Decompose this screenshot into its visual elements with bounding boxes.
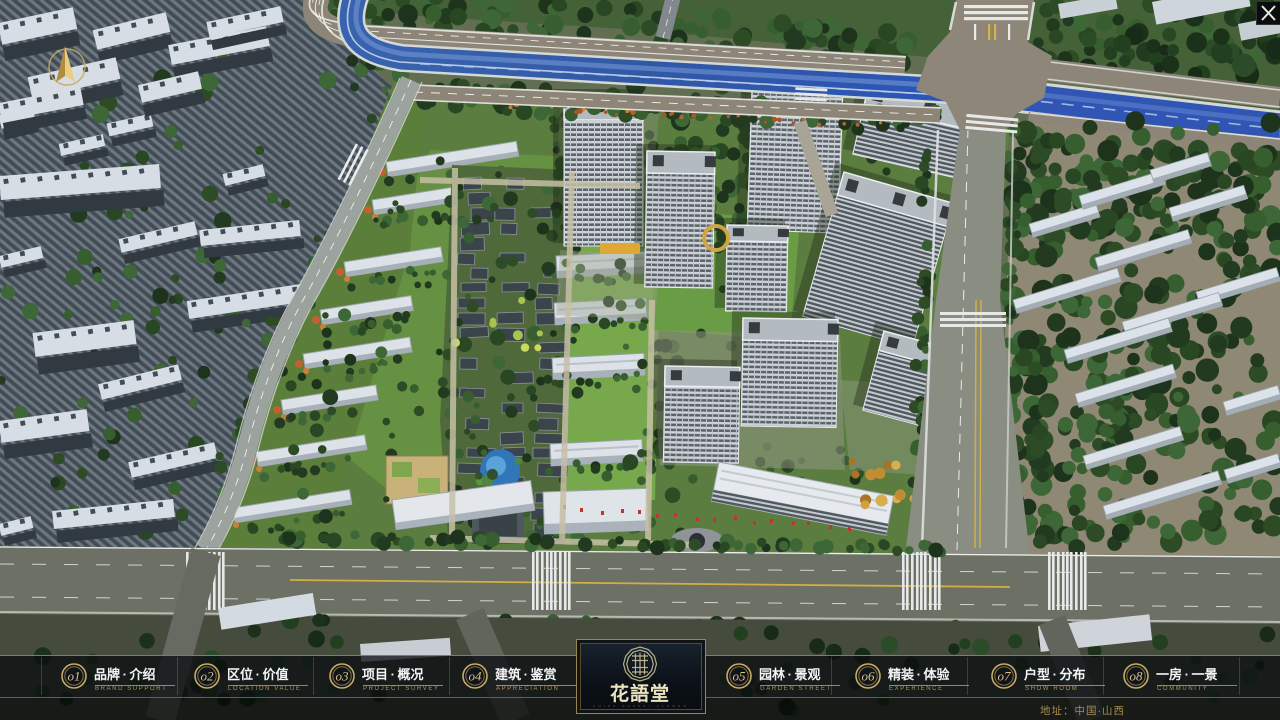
svg-text:o1: o1 — [68, 669, 81, 684]
svg-text:花語堂: 花語堂 — [610, 682, 670, 705]
svg-text:o3: o3 — [336, 669, 350, 684]
svg-text:o6: o6 — [862, 669, 876, 684]
svg-text:o2: o2 — [201, 669, 215, 684]
svg-text:o4: o4 — [469, 669, 483, 684]
svg-text:o8: o8 — [1130, 669, 1144, 684]
svg-text:o5: o5 — [733, 669, 747, 684]
svg-text:C H I N A · S H A N X I · F L: C H I N A · S H A N X I · F L O W E R — [593, 704, 687, 708]
svg-text:o7: o7 — [998, 669, 1012, 684]
